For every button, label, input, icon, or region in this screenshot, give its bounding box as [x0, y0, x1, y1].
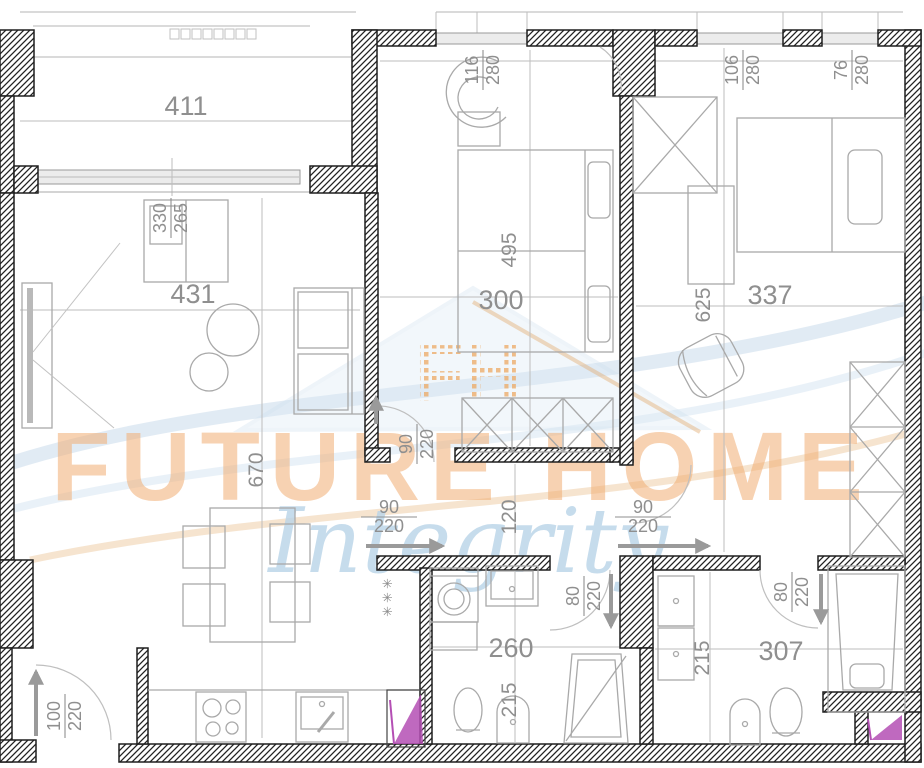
tv-unit-symbol [22, 243, 120, 428]
svg-text:90: 90 [379, 497, 399, 517]
svg-text:220: 220 [584, 581, 604, 611]
svg-text:76: 76 [831, 60, 851, 80]
stove-symbol [196, 692, 246, 742]
svg-text:220: 220 [792, 577, 812, 607]
dim-bath-center-height: 215 [498, 682, 521, 717]
nightstand-symbol [458, 112, 500, 146]
table-round-symbol [207, 304, 259, 356]
closet-stars-symbol: ✳✳✳ [380, 575, 395, 617]
dim-balcony-width: 411 [164, 91, 207, 121]
toilet-symbol [770, 688, 802, 736]
pillow-symbol [588, 286, 610, 342]
dim-door-bath-right: 80 220 [771, 572, 812, 612]
dim-window-mid: 116 280 [462, 50, 503, 90]
dim-bath-right-height: 215 [691, 640, 714, 675]
wardrobe-symbol [633, 97, 717, 193]
svg-text:80: 80 [563, 586, 583, 606]
svg-text:220: 220 [628, 516, 658, 536]
dim-bedroom-mid-height: 495 [498, 232, 521, 267]
duct-highlight [394, 694, 423, 744]
floor-plan-page: FH FUTURE HOME Integrity [0, 0, 924, 768]
toilet-symbol [454, 688, 482, 732]
svg-text:280: 280 [743, 55, 763, 85]
washing-machine-symbol [430, 568, 478, 622]
pillow-symbol [588, 162, 610, 218]
cabinet-symbol [430, 622, 477, 650]
dim-door-entry: 100 220 [44, 694, 85, 738]
svg-text:80: 80 [771, 582, 791, 602]
dim-bedroom-right-height: 625 [692, 287, 715, 322]
bidet-symbol [730, 699, 760, 745]
watermark-script: Integrity [266, 489, 669, 594]
tv-screen-symbol [27, 288, 33, 423]
dim-hall-width: 120 [498, 499, 521, 534]
kitchen-sink-symbol [296, 692, 348, 742]
svg-text:90: 90 [396, 434, 416, 454]
kitchen-symbols [148, 690, 420, 742]
svg-text:220: 220 [417, 429, 437, 459]
shower-symbol [564, 654, 628, 743]
svg-text:220: 220 [65, 701, 85, 731]
armchair-symbol [673, 328, 750, 403]
chair-symbol [183, 584, 225, 626]
dim-bath-right-width: 307 [758, 636, 803, 666]
window-106 [697, 33, 783, 44]
svg-text:265: 265 [171, 203, 191, 233]
svg-text:100: 100 [44, 701, 64, 731]
dim-window-right1: 106 280 [722, 50, 763, 90]
svg-text:220: 220 [374, 516, 404, 536]
dim-living-height: 670 [245, 452, 268, 487]
dim-window-right2: 76 280 [831, 50, 872, 90]
svg-text:280: 280 [852, 55, 872, 85]
dim-living-width: 431 [170, 279, 215, 309]
window-116 [436, 33, 527, 44]
svg-text:330: 330 [150, 203, 170, 233]
dim-bedroom-mid-width: 300 [478, 285, 523, 315]
pillow-symbol [848, 150, 882, 224]
stool-round-symbol [190, 353, 228, 391]
floor-plan: FH FUTURE HOME Integrity [0, 0, 924, 768]
dim-bath-center-width: 260 [488, 633, 533, 663]
bathtub-symbol [828, 566, 905, 712]
svg-text:106: 106 [722, 55, 742, 85]
dim-cabinet: 330 265 [150, 198, 191, 238]
dim-bedroom-right-width: 337 [747, 280, 792, 310]
svg-text:90: 90 [633, 497, 653, 517]
duct-highlight [871, 715, 902, 740]
window-76 [822, 33, 878, 44]
svg-text:116: 116 [462, 56, 482, 85]
balcony-railing [170, 29, 256, 39]
bench-symbol [688, 186, 734, 284]
svg-text:280: 280 [483, 55, 503, 85]
bed-symbol [737, 118, 905, 252]
